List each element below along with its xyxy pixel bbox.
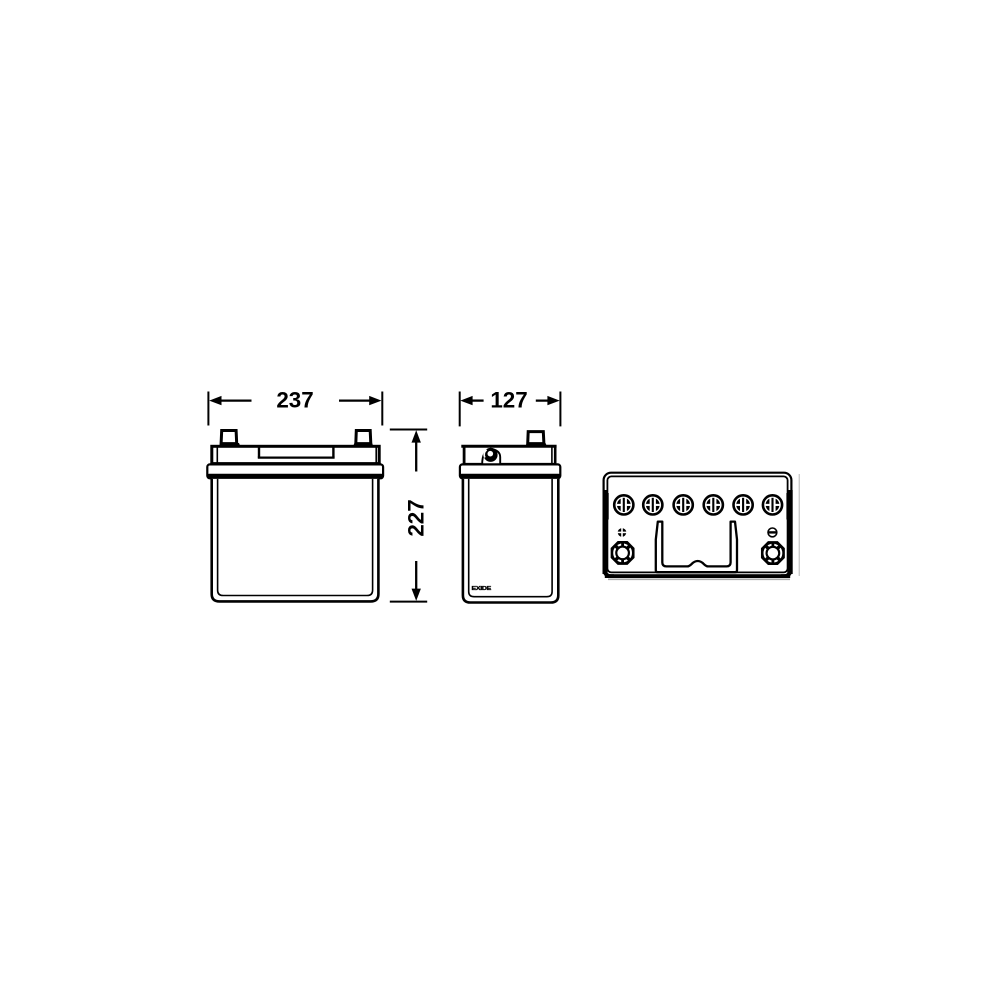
svg-text:127: 127 (490, 387, 527, 412)
svg-text:237: 237 (276, 387, 313, 412)
svg-text:227: 227 (403, 499, 428, 536)
svg-text:EXIDE: EXIDE (472, 586, 493, 592)
